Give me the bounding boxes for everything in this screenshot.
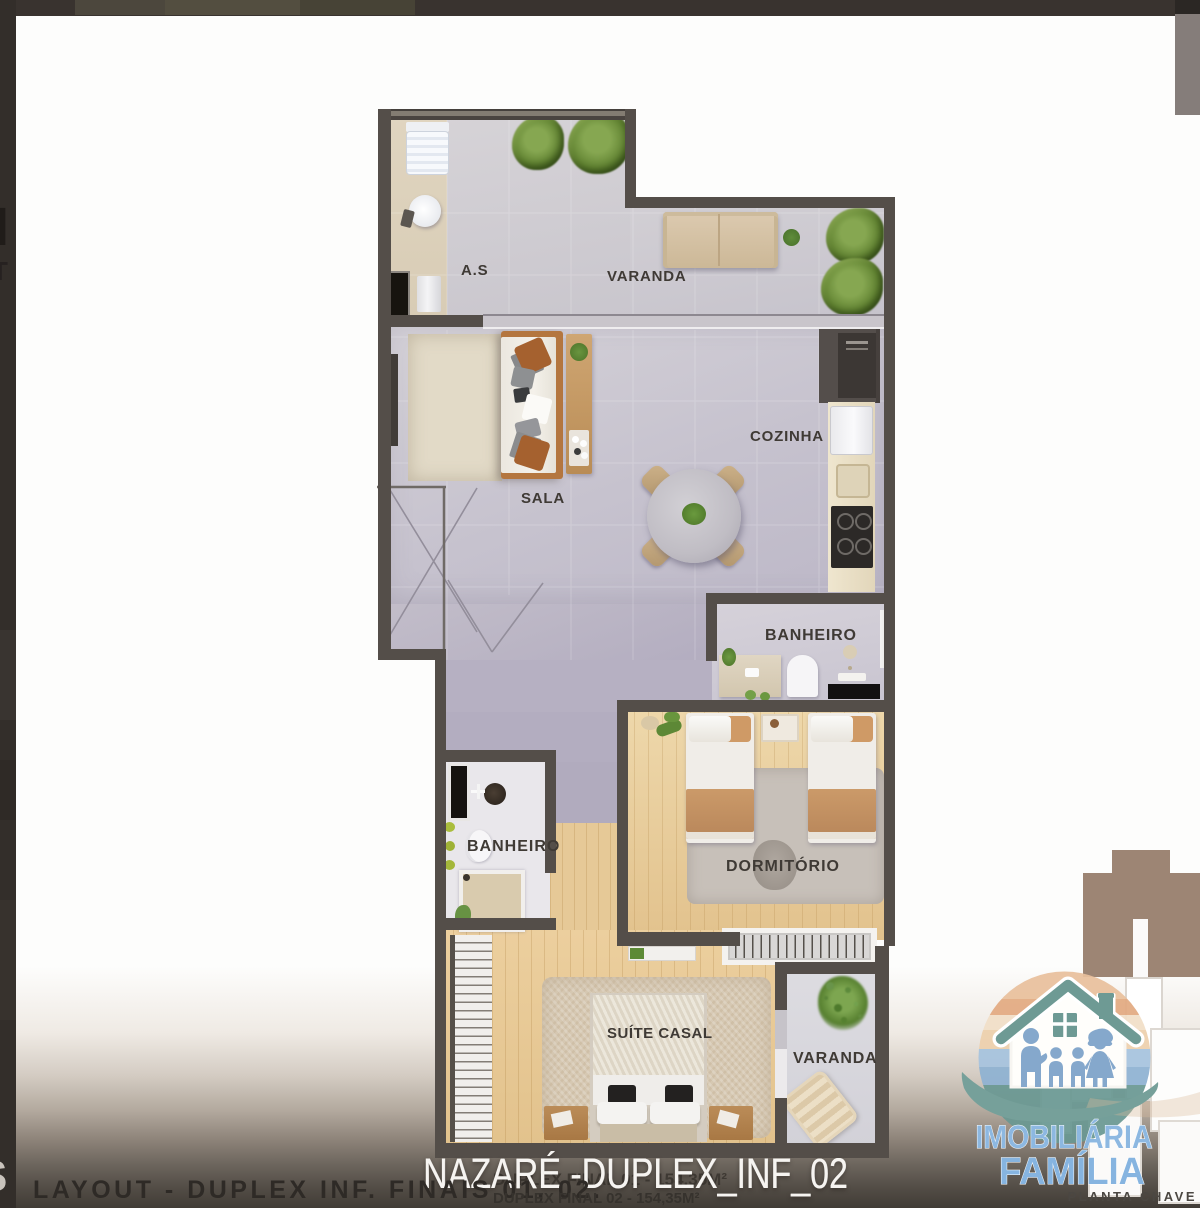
svg-text:IMOBILIÁRIA: IMOBILIÁRIA <box>976 1119 1153 1155</box>
svg-text:FAMÍLIA: FAMÍLIA <box>999 1149 1145 1193</box>
